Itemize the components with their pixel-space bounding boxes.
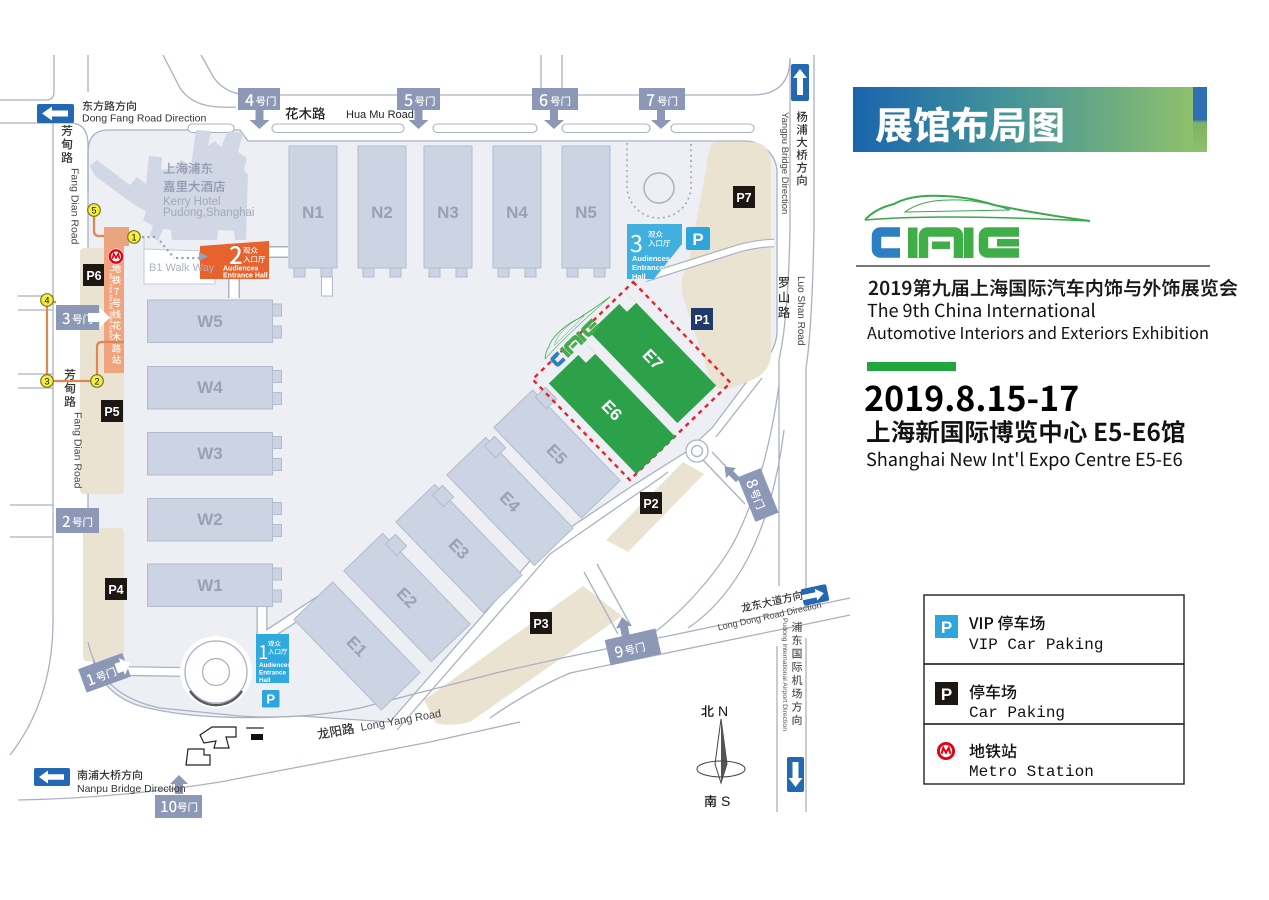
svg-text:N3: N3: [437, 203, 459, 222]
svg-text:Audiences: Audiences: [632, 254, 670, 263]
svg-text:N: N: [718, 703, 728, 719]
svg-text:Hall: Hall: [632, 272, 646, 281]
svg-text:P1: P1: [694, 313, 709, 327]
svg-text:Audiences: Audiences: [259, 662, 291, 669]
svg-text:N5: N5: [575, 203, 597, 222]
svg-text:B1 Walk Way: B1 Walk Way: [149, 262, 215, 274]
svg-text:Hua Mu Road: Hua Mu Road: [346, 109, 414, 121]
svg-text:3: 3: [44, 376, 49, 386]
svg-text:N1: N1: [302, 203, 324, 222]
svg-text:Hall: Hall: [259, 677, 271, 684]
svg-text:W4: W4: [197, 378, 223, 397]
svg-text:5: 5: [91, 205, 96, 215]
svg-text:W2: W2: [197, 510, 223, 529]
svg-text:W5: W5: [197, 312, 223, 331]
svg-text:P: P: [266, 692, 275, 707]
svg-text:Entrance: Entrance: [632, 263, 664, 272]
svg-text:Pudong International Airport D: Pudong International Airport Direction: [781, 618, 788, 731]
svg-text:W3: W3: [197, 444, 223, 463]
svg-text:1: 1: [131, 232, 136, 242]
svg-text:Entrance: Entrance: [259, 670, 286, 677]
svg-text:VIP Car Paking: VIP Car Paking: [969, 636, 1103, 654]
svg-text:P6: P6: [86, 269, 101, 283]
svg-text:Yangpu Bridge Direction: Yangpu Bridge Direction: [779, 112, 790, 214]
svg-text:P5: P5: [104, 405, 119, 419]
svg-text:S: S: [721, 793, 730, 809]
svg-text:Car Paking: Car Paking: [969, 704, 1065, 722]
svg-text:Pudong,Shanghai: Pudong,Shanghai: [163, 207, 254, 219]
svg-text:P4: P4: [108, 583, 123, 597]
svg-text:Luo Shan Road: Luo Shan Road: [795, 276, 806, 346]
svg-text:P: P: [692, 230, 703, 249]
svg-text:P: P: [941, 618, 952, 637]
svg-text:Fang Dian Road: Fang Dian Road: [72, 412, 84, 489]
svg-text:4: 4: [44, 295, 49, 305]
svg-text:Metro Station: Metro Station: [969, 763, 1094, 781]
svg-text:Nanpu Bridge Direction: Nanpu Bridge Direction: [77, 783, 186, 795]
svg-text:Fang Dian Road: Fang Dian Road: [69, 168, 81, 245]
svg-text:2: 2: [94, 376, 99, 386]
svg-text:Line 7 Hua Mu Rd. Metro Statio: Line 7 Hua Mu Rd. Metro Station: [108, 270, 114, 340]
svg-text:Dong Fang Road Direction: Dong Fang Road Direction: [82, 113, 206, 125]
svg-text:P2: P2: [643, 497, 658, 511]
svg-text:P7: P7: [736, 191, 751, 205]
svg-text:N2: N2: [371, 203, 393, 222]
svg-text:P3: P3: [533, 617, 548, 631]
svg-text:N4: N4: [506, 203, 528, 222]
svg-text:W1: W1: [197, 576, 223, 595]
svg-text:P: P: [941, 685, 952, 704]
svg-text:Audiences: Audiences: [223, 266, 259, 273]
svg-text:Entrance Hall: Entrance Hall: [223, 273, 268, 280]
